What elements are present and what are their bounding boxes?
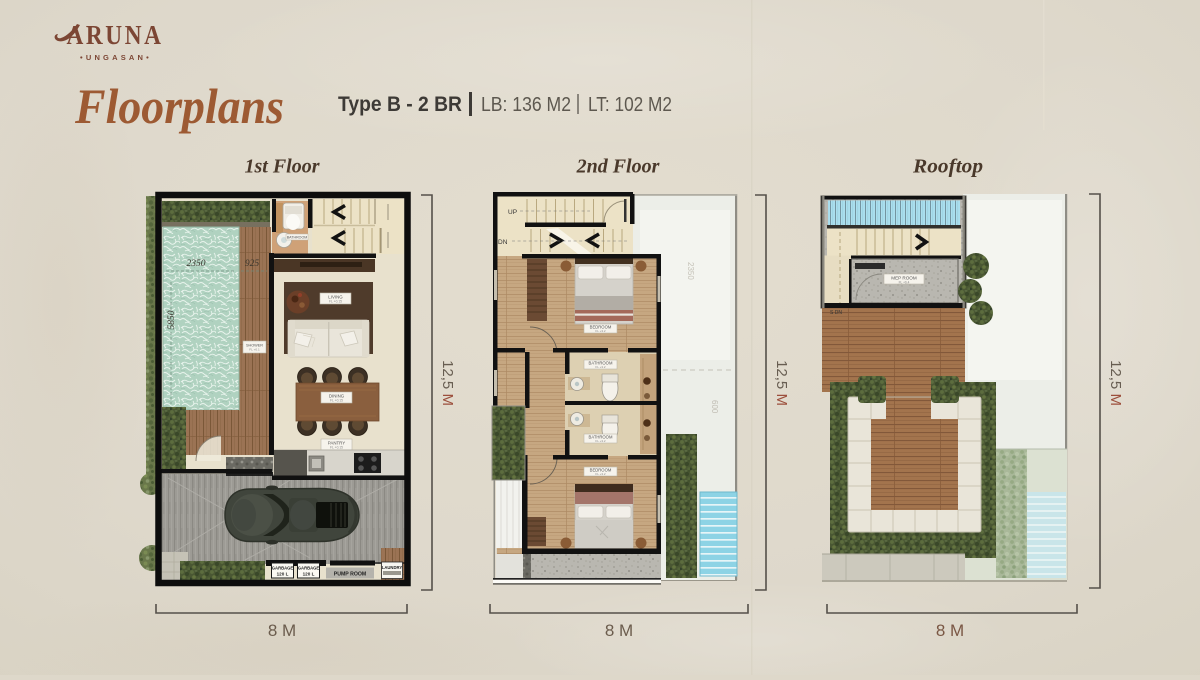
svg-text:120 L: 120 L bbox=[277, 572, 289, 577]
svg-text:PUMP ROOM: PUMP ROOM bbox=[334, 572, 366, 578]
svg-text:ARUNA: ARUNA bbox=[67, 20, 164, 50]
svg-text:DN: DN bbox=[498, 239, 508, 246]
svg-text:S DN: S DN bbox=[830, 310, 842, 316]
svg-text:FL +3.2: FL +3.2 bbox=[595, 329, 605, 333]
svg-text:8 M: 8 M bbox=[605, 621, 633, 640]
svg-text:FL +3.2: FL +3.2 bbox=[595, 439, 605, 443]
svg-text:12,5 M: 12,5 M bbox=[1107, 360, 1124, 406]
svg-text:12,5 M: 12,5 M bbox=[439, 360, 456, 406]
svg-text:•UNGASAN•: •UNGASAN• bbox=[80, 53, 152, 62]
svg-text:FL +0.15: FL +0.15 bbox=[329, 300, 342, 304]
svg-text:BATHROOM: BATHROOM bbox=[287, 236, 308, 240]
svg-text:2nd Floor: 2nd Floor bbox=[576, 156, 660, 178]
svg-text:8 M: 8 M bbox=[936, 621, 964, 640]
svg-text:120 L: 120 L bbox=[303, 572, 315, 577]
svg-text:8 M: 8 M bbox=[268, 621, 296, 640]
svg-text:LAUNDRY: LAUNDRY bbox=[382, 565, 403, 570]
svg-text:FL +0.15: FL +0.15 bbox=[330, 446, 343, 450]
svg-text:FL +0.1: FL +0.1 bbox=[249, 348, 260, 352]
svg-text:LT: 102 M2: LT: 102 M2 bbox=[588, 94, 672, 116]
svg-text:FL +3.2: FL +3.2 bbox=[595, 472, 605, 476]
svg-text:2350: 2350 bbox=[187, 259, 206, 269]
svg-text:925: 925 bbox=[245, 259, 260, 269]
svg-text:Type B - 2 BR: Type B - 2 BR bbox=[338, 93, 462, 116]
svg-text:Floorplans: Floorplans bbox=[74, 78, 284, 134]
svg-text:2350: 2350 bbox=[686, 262, 695, 280]
svg-text:FL +3.2: FL +3.2 bbox=[595, 365, 605, 369]
svg-text:GARBAGE: GARBAGE bbox=[272, 566, 294, 571]
svg-text:UP: UP bbox=[508, 209, 517, 216]
svg-text:GARBAGE: GARBAGE bbox=[298, 566, 320, 571]
svg-text:600: 600 bbox=[710, 400, 719, 414]
svg-text:12,5 M: 12,5 M bbox=[773, 360, 790, 406]
svg-text:5850: 5850 bbox=[167, 310, 177, 329]
svg-text:FL +0.15: FL +0.15 bbox=[330, 399, 343, 403]
svg-text:FL +6.4: FL +6.4 bbox=[899, 280, 910, 284]
svg-text:Rooftop: Rooftop bbox=[912, 156, 983, 178]
svg-text:LB: 136 M2: LB: 136 M2 bbox=[481, 94, 571, 116]
svg-text:1st Floor: 1st Floor bbox=[244, 156, 319, 178]
